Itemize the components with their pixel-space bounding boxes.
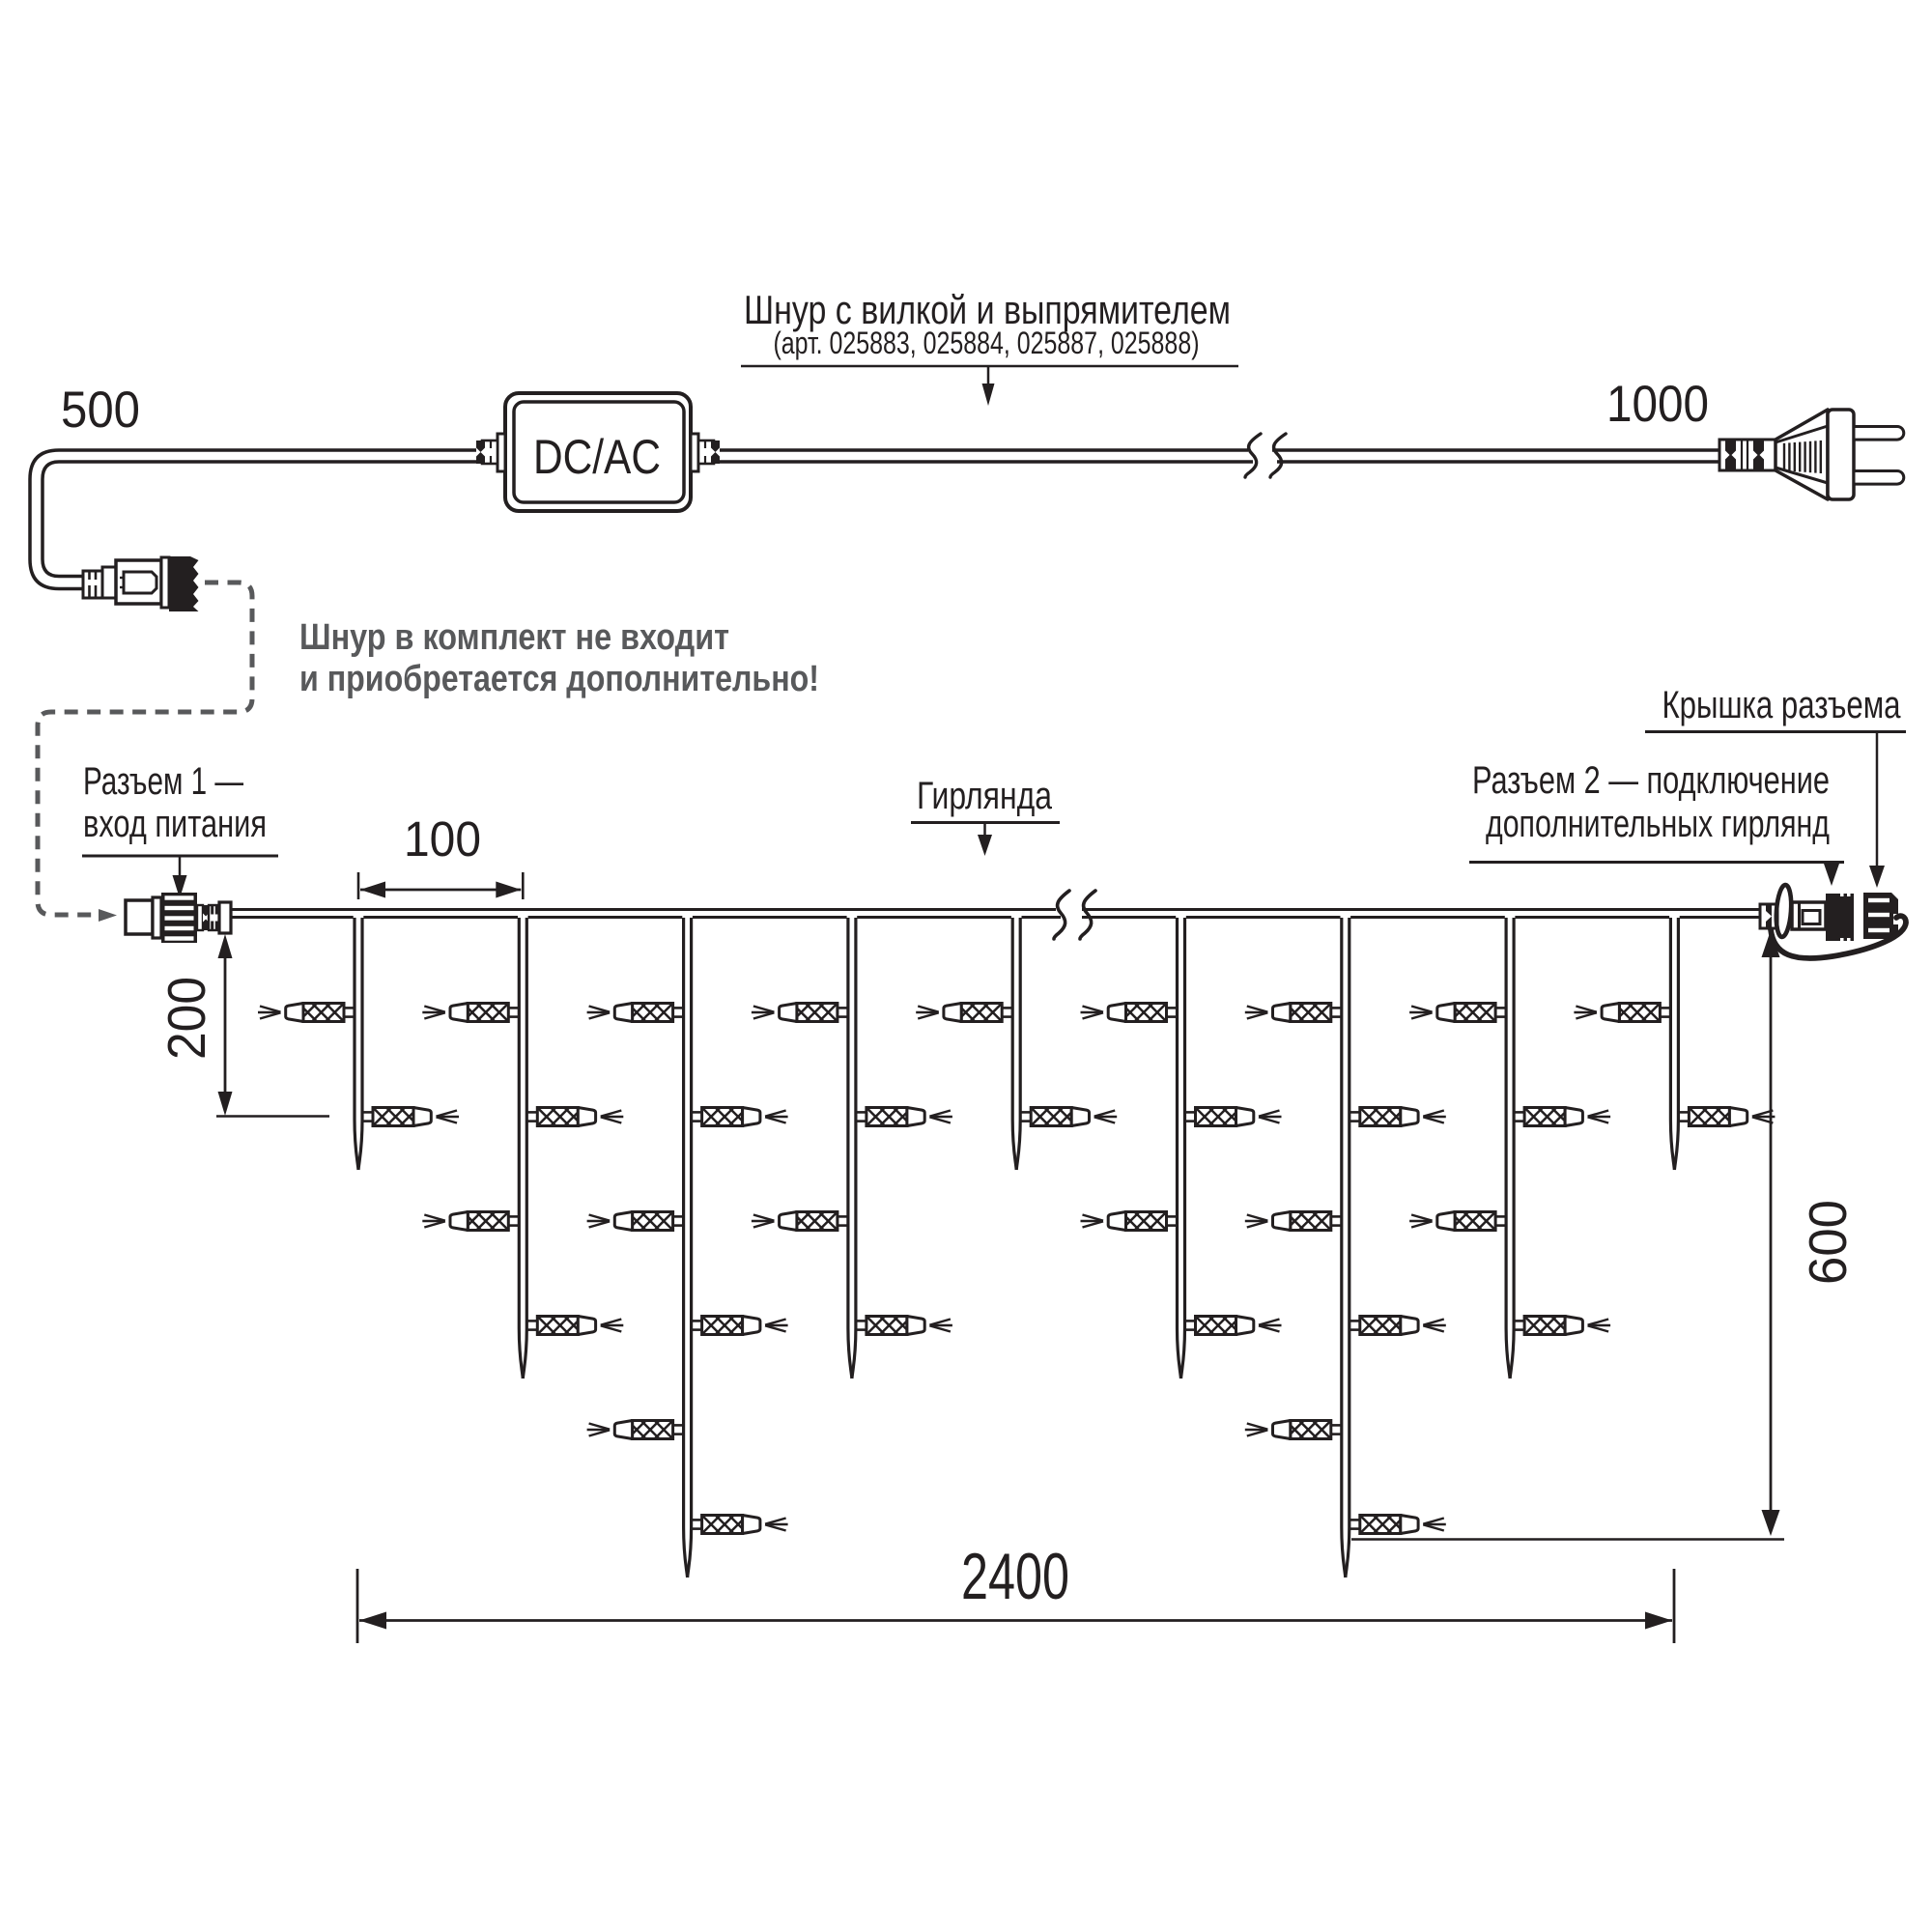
svg-text:Разъем 1 —: Разъем 1 — bbox=[83, 760, 243, 803]
svg-text:(арт. 025883, 025884, 025887,: (арт. 025883, 025884, 025887, 025888) bbox=[774, 326, 1200, 360]
svg-text:DC/AC: DC/AC bbox=[533, 430, 661, 484]
svg-text:600: 600 bbox=[1798, 1200, 1858, 1285]
svg-text:вход питания: вход питания bbox=[83, 803, 267, 845]
svg-text:Разъем 2 — подключение: Разъем 2 — подключение bbox=[1472, 759, 1830, 802]
svg-text:500: 500 bbox=[61, 382, 140, 439]
svg-text:100: 100 bbox=[404, 811, 481, 867]
svg-text:1000: 1000 bbox=[1606, 376, 1709, 433]
svg-text:Шнур в комплект не входит: Шнур в комплект не входит bbox=[299, 617, 729, 658]
svg-text:и приобретается дополнительно!: и приобретается дополнительно! bbox=[299, 659, 819, 699]
svg-text:Крышка разъема: Крышка разъема bbox=[1662, 684, 1902, 726]
svg-text:дополнительных гирлянд: дополнительных гирлянд bbox=[1486, 803, 1830, 845]
svg-text:2400: 2400 bbox=[961, 1540, 1069, 1613]
svg-text:Гирлянда: Гирлянда bbox=[917, 775, 1053, 817]
svg-text:200: 200 bbox=[156, 977, 216, 1060]
